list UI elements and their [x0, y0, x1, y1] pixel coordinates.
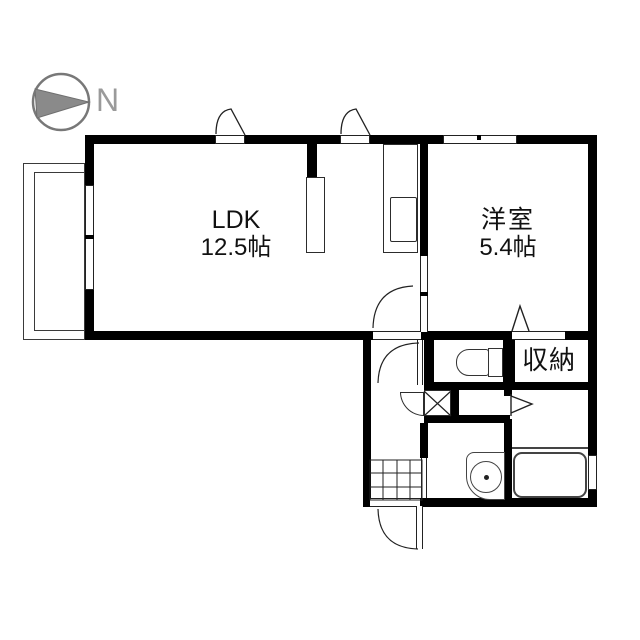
casement-window-2-swing-icon — [341, 109, 370, 135]
wall-bathroom-left — [504, 419, 512, 498]
washroom-sliding-door — [421, 458, 427, 498]
ldk-room-name: LDK — [161, 206, 311, 235]
bathtub-platform-line — [512, 447, 588, 449]
closet-door-opening — [512, 331, 565, 340]
north-label: N — [96, 82, 119, 119]
wall-right — [588, 144, 597, 455]
wall-yoshitsu-bottom — [421, 331, 512, 340]
wall-bottom — [420, 498, 597, 507]
floor-plan: N LDK 12.5帖 洋室 5.4帖 収納 — [0, 0, 640, 640]
washing-box-door-icon — [400, 392, 424, 416]
sliding-window-ldk-rail — [85, 235, 94, 239]
bathroom-bifold-door-icon — [511, 394, 532, 416]
toilet-door-swing-icon — [378, 343, 419, 383]
north-arrow-icon — [33, 74, 89, 130]
ldk-room-size: 12.5帖 — [161, 234, 311, 262]
wall-toilet-left — [424, 336, 434, 388]
washing-machine-box-icon — [424, 390, 451, 416]
sliding-window-yoshitsu-rail — [477, 135, 481, 140]
wall-washroom-top — [424, 415, 510, 423]
closet-bifold-door-icon — [512, 306, 529, 331]
wall-hall-left — [363, 340, 371, 507]
casement-window-1 — [215, 135, 245, 144]
entrance-tile-grid-icon — [370, 460, 422, 500]
kitchen-sink-icon — [390, 197, 417, 242]
toilet-bowl-icon — [456, 349, 489, 376]
wall-ldk-bottom — [85, 331, 373, 340]
wall-toilet-storage-bottom — [424, 382, 597, 390]
wall-kitchen-stub — [307, 144, 317, 177]
entrance-door-leaf — [416, 506, 423, 549]
western-room-size: 5.4帖 — [433, 234, 583, 262]
wall-bottom-left — [363, 498, 370, 507]
toilet-tank-icon — [488, 348, 503, 377]
casement-window-1-swing-icon — [216, 109, 245, 135]
bathroom-window — [588, 455, 597, 490]
casement-window-2 — [340, 135, 370, 144]
wash-basin-drain-icon — [484, 475, 489, 480]
entrance-opening — [370, 498, 420, 507]
ldk-yoshitsu-sliding-door-rail — [420, 292, 428, 296]
wall-ldk-yoshitsu-divider — [420, 144, 428, 256]
bathtub-icon — [513, 452, 587, 498]
balcony-inner-line — [34, 172, 85, 331]
toilet-door-leaf — [417, 340, 423, 385]
wall-bathroom-left-top — [504, 390, 512, 396]
wall-washroom-left — [420, 423, 428, 458]
entrance-door-swing-icon — [378, 509, 418, 549]
ldk-door-opening — [373, 331, 421, 340]
western-room-name: 洋室 — [433, 206, 583, 235]
storage-room-name: 収納 — [508, 346, 590, 376]
ldk-door-swing-icon — [373, 286, 413, 328]
